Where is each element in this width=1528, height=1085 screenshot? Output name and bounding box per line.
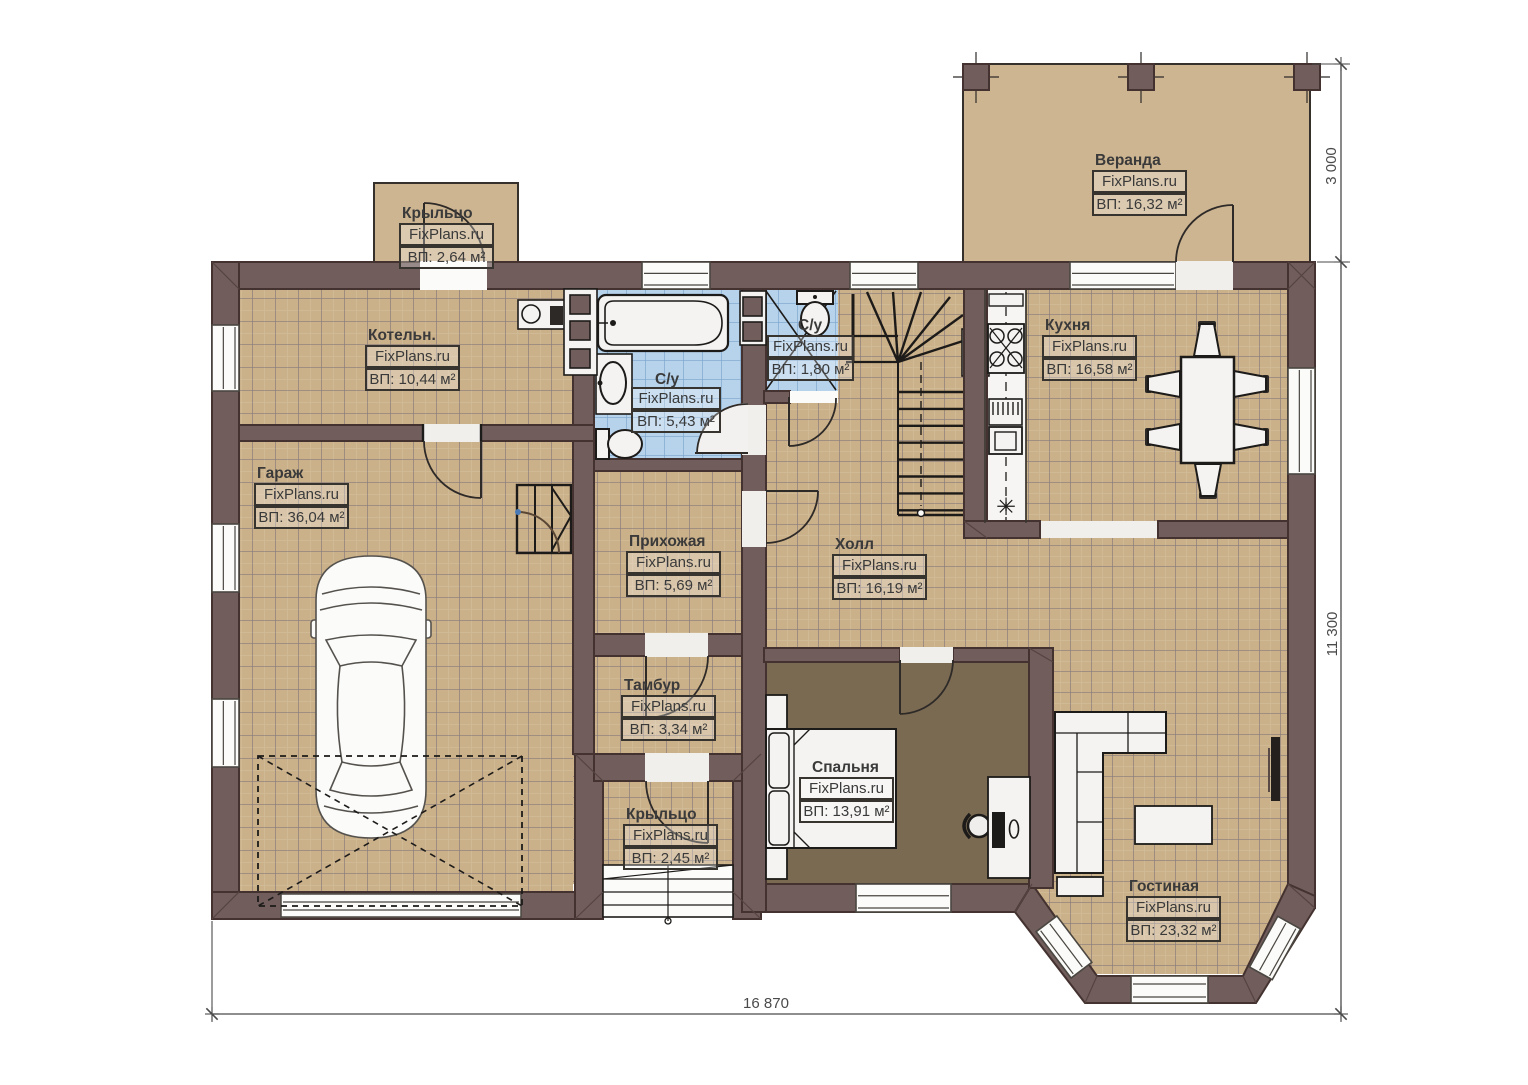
svg-text:FixPlans.ru: FixPlans.ru bbox=[1052, 338, 1127, 355]
svg-text:Гараж: Гараж bbox=[257, 465, 304, 482]
svg-text:ВП: 10,44 м²: ВП: 10,44 м² bbox=[369, 371, 455, 388]
svg-text:FixPlans.ru: FixPlans.ru bbox=[375, 348, 450, 365]
svg-text:Прихожая: Прихожая bbox=[629, 533, 705, 550]
svg-text:Тамбур: Тамбур bbox=[624, 677, 680, 694]
svg-text:FixPlans.ru: FixPlans.ru bbox=[809, 780, 884, 797]
svg-text:ВП: 5,69 м²: ВП: 5,69 м² bbox=[635, 577, 713, 594]
svg-text:Кухня: Кухня bbox=[1045, 317, 1090, 334]
svg-text:ВП: 2,45 м²: ВП: 2,45 м² bbox=[632, 850, 710, 867]
svg-text:ВП: 16,32 м²: ВП: 16,32 м² bbox=[1096, 196, 1182, 213]
svg-text:ВП: 1,80 м²: ВП: 1,80 м² bbox=[772, 361, 850, 378]
svg-text:FixPlans.ru: FixPlans.ru bbox=[264, 486, 339, 503]
svg-text:11 300: 11 300 bbox=[1324, 612, 1341, 657]
svg-text:Котельн.: Котельн. bbox=[368, 327, 436, 344]
svg-text:FixPlans.ru: FixPlans.ru bbox=[638, 390, 713, 407]
svg-text:С/у: С/у bbox=[798, 317, 823, 334]
svg-text:ВП: 16,19 м²: ВП: 16,19 м² bbox=[836, 580, 922, 597]
svg-text:FixPlans.ru: FixPlans.ru bbox=[773, 338, 848, 355]
svg-text:FixPlans.ru: FixPlans.ru bbox=[631, 698, 706, 715]
svg-text:Гостиная: Гостиная bbox=[1129, 878, 1199, 895]
svg-text:FixPlans.ru: FixPlans.ru bbox=[633, 827, 708, 844]
svg-text:FixPlans.ru: FixPlans.ru bbox=[409, 226, 484, 243]
svg-text:ВП: 2,64 м²: ВП: 2,64 м² bbox=[408, 249, 486, 266]
svg-text:FixPlans.ru: FixPlans.ru bbox=[1102, 173, 1177, 190]
svg-text:С/у: С/у bbox=[655, 371, 680, 388]
svg-text:ВП: 5,43 м²: ВП: 5,43 м² bbox=[637, 413, 715, 430]
svg-text:ВП: 16,58 м²: ВП: 16,58 м² bbox=[1046, 361, 1132, 378]
svg-text:3 000: 3 000 bbox=[1323, 147, 1340, 185]
svg-text:ВП: 13,91 м²: ВП: 13,91 м² bbox=[803, 803, 889, 820]
svg-text:Веранда: Веранда bbox=[1095, 152, 1161, 169]
svg-text:FixPlans.ru: FixPlans.ru bbox=[1136, 899, 1211, 916]
svg-text:ВП: 3,34 м²: ВП: 3,34 м² bbox=[630, 721, 708, 738]
svg-text:Крыльцо: Крыльцо bbox=[402, 205, 473, 222]
svg-text:Крыльцо: Крыльцо bbox=[626, 806, 697, 823]
svg-text:✳: ✳ bbox=[996, 494, 1016, 521]
svg-text:ВП: 23,32 м²: ВП: 23,32 м² bbox=[1130, 922, 1216, 939]
svg-text:Спальня: Спальня bbox=[812, 759, 879, 776]
svg-text:16 870: 16 870 bbox=[743, 995, 789, 1012]
svg-text:Холл: Холл bbox=[835, 536, 874, 553]
svg-text:FixPlans.ru: FixPlans.ru bbox=[636, 554, 711, 571]
svg-text:FixPlans.ru: FixPlans.ru bbox=[842, 557, 917, 574]
svg-text:ВП: 36,04 м²: ВП: 36,04 м² bbox=[258, 509, 344, 526]
